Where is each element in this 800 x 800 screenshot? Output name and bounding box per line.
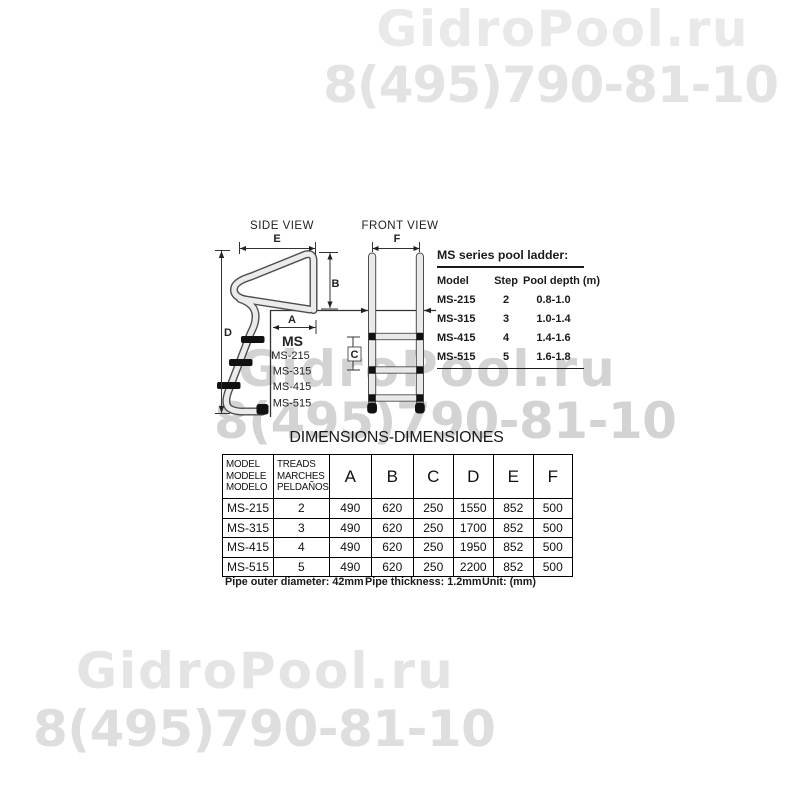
spec-cell-depth: 0.8-1.0: [523, 294, 584, 306]
watermark-brand-bottom: GidroPool.ru: [76, 646, 455, 696]
cell-model: MS-315: [223, 518, 274, 538]
spec-cell-step: 2: [489, 294, 523, 306]
side-view-title: SIDE VIEW: [250, 220, 314, 232]
header-dim-d: D: [453, 455, 493, 499]
spec-header-model: Model: [437, 275, 489, 287]
dimensions-row: MS-415 4 490 620 250 1950 852 500: [223, 538, 573, 558]
ladder-diagram: SIDE VIEW FRONT VIEW: [200, 210, 460, 455]
header-model-line: MODEL: [226, 459, 273, 471]
header-treads: TREADS MARCHES PELDAÑOS: [274, 455, 330, 499]
cell-e: 852: [493, 538, 533, 558]
header-treads-line: MARCHES: [277, 471, 329, 483]
cell-a: 490: [329, 538, 371, 558]
cell-b: 620: [371, 518, 413, 538]
cell-d: 2200: [453, 557, 493, 577]
dim-label-b: B: [332, 278, 340, 290]
spec-cell-depth: 1.0-1.4: [523, 313, 584, 325]
spec-cell-step: 4: [489, 332, 523, 344]
dimensions-table-title: DIMENSIONS-DIMENSIONES: [222, 429, 571, 447]
spec-row: MS-515 5 1.6-1.8: [437, 351, 584, 363]
front-view-title: FRONT VIEW: [362, 220, 439, 232]
front-ladder: [367, 253, 425, 414]
cell-a: 490: [329, 518, 371, 538]
cell-e: 852: [493, 518, 533, 538]
cell-model: MS-515: [223, 557, 274, 577]
watermark-phone-bottom: 8(495)790-81-10: [33, 704, 495, 754]
front-rungs: [372, 333, 420, 401]
header-dim-f: F: [533, 455, 572, 499]
header-dim-e: E: [493, 455, 533, 499]
cell-model: MS-415: [223, 538, 274, 558]
spec-table-header: Model Step Pool depth (m): [437, 275, 584, 287]
header-dim-c: C: [413, 455, 453, 499]
cell-d: 1700: [453, 518, 493, 538]
cell-c: 250: [413, 557, 453, 577]
cell-b: 620: [371, 499, 413, 519]
spec-cell-step: 3: [489, 313, 523, 325]
spec-row: MS-215 2 0.8-1.0: [437, 294, 584, 306]
header-treads-line: TREADS: [277, 459, 329, 471]
pool-ladder-spec-sheet: GidroPool.ru 8(495)790-81-10 GidroPool.r…: [0, 0, 800, 800]
spec-table-bottom-rule: [437, 368, 584, 369]
cell-f: 500: [533, 557, 572, 577]
cell-treads: 3: [274, 518, 330, 538]
spec-header-depth: Pool depth (m): [523, 275, 600, 287]
dim-label-c: C: [351, 349, 359, 361]
cell-treads: 4: [274, 538, 330, 558]
note-pipe-outer-diameter: Pipe outer diameter: 42mm: [225, 576, 364, 588]
note-unit: Unit: (mm): [482, 576, 536, 588]
dim-label-d: D: [224, 327, 232, 339]
series-model-1: MS-315: [273, 366, 312, 378]
watermark-brand-top: GidroPool.ru: [376, 4, 749, 54]
spec-cell-step: 5: [489, 351, 523, 363]
cell-b: 620: [371, 538, 413, 558]
deck-arrow-left: [361, 308, 368, 313]
spec-cell-depth: 1.4-1.6: [523, 332, 584, 344]
dimensions-row: MS-515 5 490 620 250 2200 852 500: [223, 557, 573, 577]
spec-table: MS series pool ladder: Model Step Pool d…: [437, 248, 584, 369]
dim-label-f: F: [394, 233, 401, 245]
cell-c: 250: [413, 499, 453, 519]
spec-cell-model: MS-215: [437, 294, 489, 306]
cell-b: 620: [371, 557, 413, 577]
cell-f: 500: [533, 518, 572, 538]
spec-cell-depth: 1.6-1.8: [523, 351, 584, 363]
cell-c: 250: [413, 538, 453, 558]
cell-a: 490: [329, 499, 371, 519]
spec-cell-model: MS-515: [437, 351, 489, 363]
watermark-phone-top: 8(495)790-81-10: [323, 60, 778, 110]
dimensions-row: MS-315 3 490 620 250 1700 852 500: [223, 518, 573, 538]
cell-e: 852: [493, 499, 533, 519]
cell-d: 1950: [453, 538, 493, 558]
spec-cell-model: MS-315: [437, 313, 489, 325]
header-model: MODEL MODELE MODELO: [223, 455, 274, 499]
spec-row: MS-415 4 1.4-1.6: [437, 332, 584, 344]
header-model-line: MODELE: [226, 471, 273, 483]
dim-label-e: E: [273, 233, 280, 245]
note-pipe-thickness: Pipe thickness: 1.2mm: [365, 576, 481, 588]
side-foot-pad: [257, 404, 269, 415]
cell-a: 490: [329, 557, 371, 577]
cell-f: 500: [533, 538, 572, 558]
spec-cell-model: MS-415: [437, 332, 489, 344]
deck-arrow-right: [424, 308, 431, 313]
series-model-0: MS-215: [271, 350, 310, 362]
header-dim-b: B: [371, 455, 413, 499]
front-feet: [367, 403, 425, 414]
header-treads-line: PELDAÑOS: [277, 482, 329, 494]
cell-treads: 5: [274, 557, 330, 577]
dimensions-row: MS-215 2 490 620 250 1550 852 500: [223, 499, 573, 519]
series-model-3: MS-515: [273, 398, 312, 410]
cell-model: MS-215: [223, 499, 274, 519]
cell-d: 1550: [453, 499, 493, 519]
cell-c: 250: [413, 518, 453, 538]
spec-table-title: MS series pool ladder:: [437, 248, 584, 268]
cell-f: 500: [533, 499, 572, 519]
header-dim-a: A: [329, 455, 371, 499]
cell-e: 852: [493, 557, 533, 577]
header-model-line: MODELO: [226, 482, 273, 494]
series-label: MS: [282, 333, 303, 349]
spec-row: MS-315 3 1.0-1.4: [437, 313, 584, 325]
cell-treads: 2: [274, 499, 330, 519]
dimensions-table: MODEL MODELE MODELO TREADS MARCHES PELDA…: [222, 454, 573, 577]
spec-header-step: Step: [489, 275, 523, 287]
series-model-2: MS-415: [273, 381, 312, 393]
dimensions-header-row: MODEL MODELE MODELO TREADS MARCHES PELDA…: [223, 455, 573, 499]
dim-label-a: A: [288, 314, 296, 326]
